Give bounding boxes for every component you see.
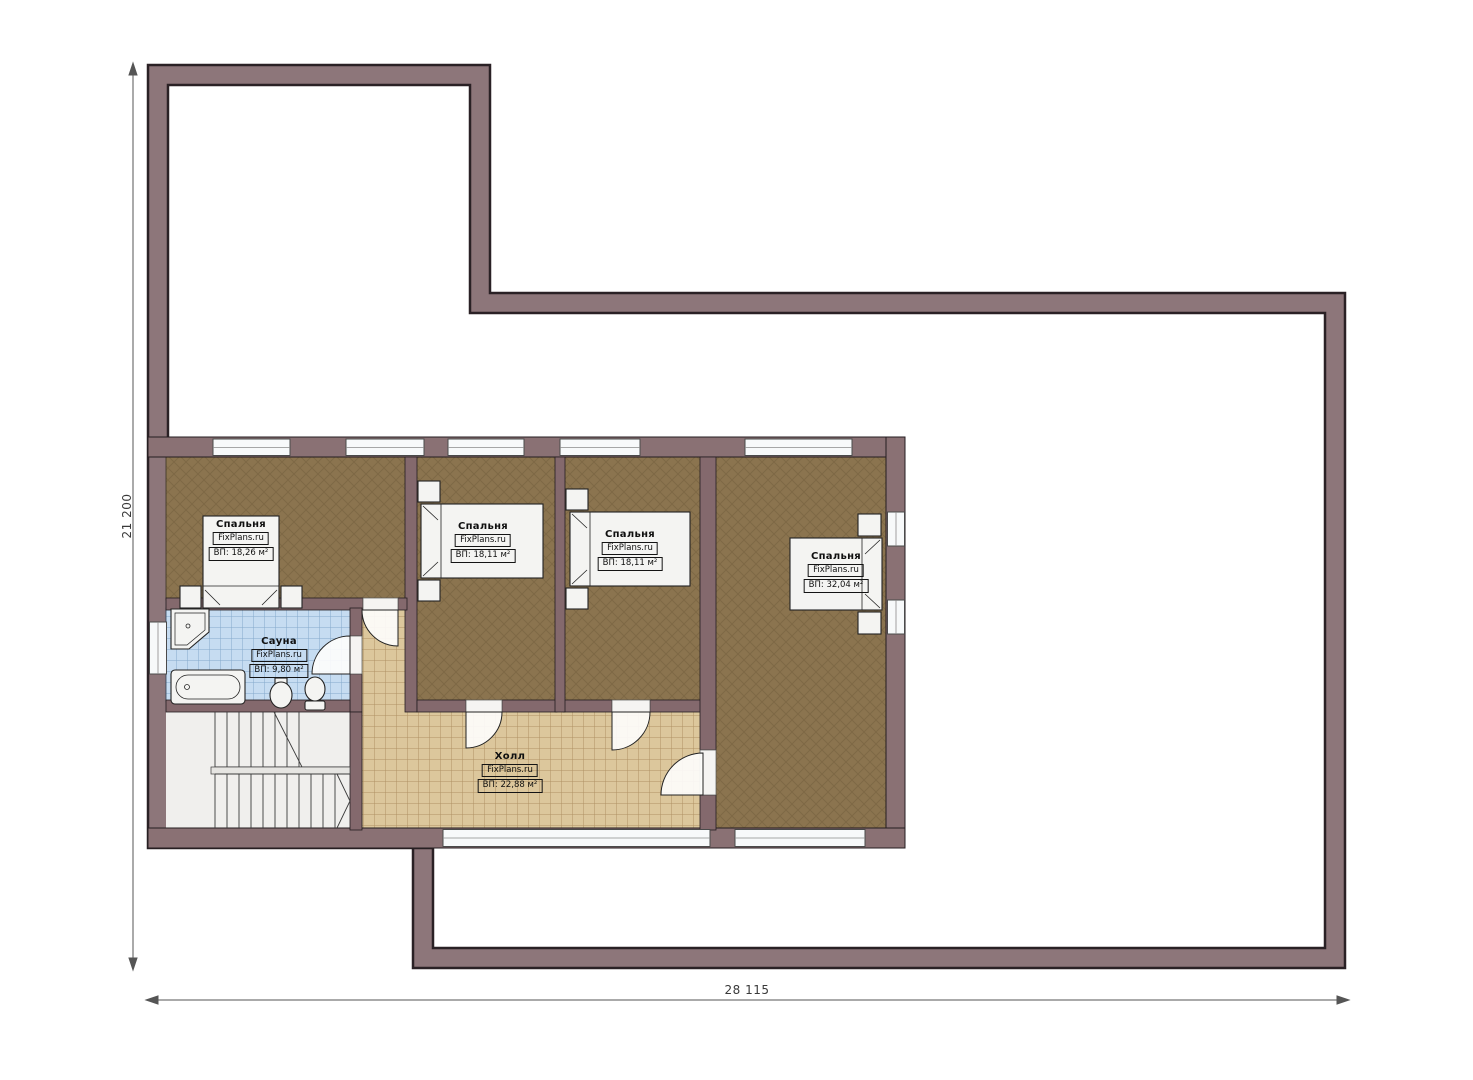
- watermark: FixPlans.ru: [482, 764, 538, 777]
- nightstand: [418, 481, 440, 502]
- bedroom-1-floor: [166, 455, 407, 600]
- nightstand: [858, 612, 881, 634]
- room-label-bedroom-2: Спальня FixPlans.ru ВП: 18,11 м²: [451, 521, 516, 563]
- watermark: FixPlans.ru: [213, 532, 269, 545]
- room-label-sauna: Сауна FixPlans.ru ВП: 9,80 м²: [249, 636, 308, 678]
- room-area: ВП: 18,11 м²: [451, 549, 516, 562]
- dimension-width-label: 28 115: [725, 983, 770, 997]
- nightstand: [281, 586, 302, 608]
- watermark: FixPlans.ru: [455, 534, 511, 547]
- room-name: Спальня: [216, 519, 266, 530]
- room-name: Спальня: [458, 521, 508, 532]
- room-label-bedroom-3: Спальня FixPlans.ru ВП: 18,11 м²: [598, 529, 663, 571]
- nightstand: [858, 514, 881, 536]
- room-label-hall: Холл FixPlans.ru ВП: 22,88 м²: [478, 751, 543, 793]
- room-area: ВП: 18,26 м²: [209, 547, 274, 560]
- bedroom-4-floor: [714, 455, 888, 830]
- room-area: ВП: 22,88 м²: [478, 779, 543, 792]
- room-name: Холл: [495, 751, 525, 762]
- room-name: Сауна: [261, 636, 297, 647]
- dimension-height-label: 21 200: [120, 494, 134, 539]
- nightstand: [566, 489, 588, 510]
- nightstand: [566, 588, 588, 609]
- watermark: FixPlans.ru: [251, 649, 307, 662]
- watermark: FixPlans.ru: [808, 564, 864, 577]
- room-label-bedroom-4: Спальня FixPlans.ru ВП: 32,04 м²: [804, 551, 869, 593]
- toilet: [305, 677, 325, 710]
- nightstand: [418, 580, 440, 601]
- room-area: ВП: 32,04 м²: [804, 579, 869, 592]
- watermark: FixPlans.ru: [602, 542, 658, 555]
- room-label-bedroom-1: Спальня FixPlans.ru ВП: 18,26 м²: [209, 519, 274, 561]
- floor-plan-page: Спальня FixPlans.ru ВП: 18,26 м² Спальня…: [0, 0, 1473, 1080]
- room-name: Спальня: [605, 529, 655, 540]
- bathtub: [171, 670, 245, 704]
- room-name: Спальня: [811, 551, 861, 562]
- room-area: ВП: 18,11 м²: [598, 557, 663, 570]
- nightstand: [180, 586, 201, 608]
- room-area: ВП: 9,80 м²: [249, 664, 308, 677]
